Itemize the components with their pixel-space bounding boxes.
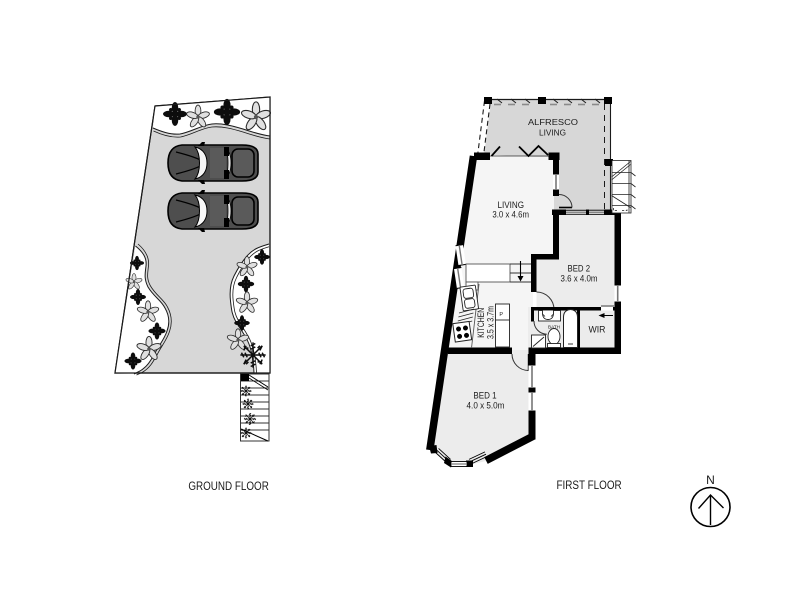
svg-text:3.0 x 4.6m: 3.0 x 4.6m bbox=[492, 209, 529, 219]
svg-text:P: P bbox=[499, 312, 503, 318]
svg-text:BED 2: BED 2 bbox=[568, 264, 591, 274]
svg-text:BATH: BATH bbox=[548, 325, 561, 331]
svg-text:GROUND FLOOR: GROUND FLOOR bbox=[188, 479, 269, 493]
svg-text:LIVING: LIVING bbox=[539, 127, 566, 137]
svg-text:FIRST FLOOR: FIRST FLOOR bbox=[557, 478, 622, 492]
svg-text:4.0 x 5.0m: 4.0 x 5.0m bbox=[467, 400, 505, 410]
svg-text:ALFRESCO: ALFRESCO bbox=[528, 117, 578, 127]
svg-text:WIR: WIR bbox=[589, 325, 606, 336]
svg-text:N: N bbox=[706, 473, 715, 487]
svg-text:3.5 x 3.7m: 3.5 x 3.7m bbox=[485, 306, 495, 339]
svg-text:BED 1: BED 1 bbox=[473, 390, 496, 400]
svg-text:3.6 x 4.0m: 3.6 x 4.0m bbox=[561, 273, 598, 283]
